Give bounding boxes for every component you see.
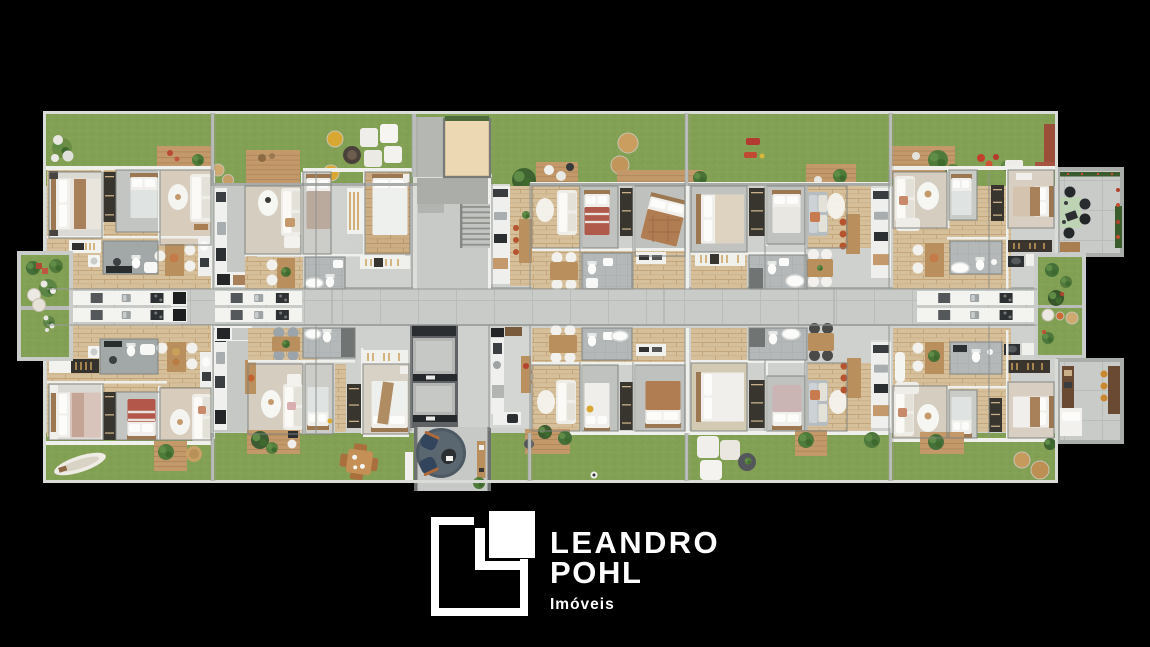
svg-text:POHL: POHL: [550, 555, 643, 590]
svg-text:Imóveis: Imóveis: [550, 596, 615, 613]
